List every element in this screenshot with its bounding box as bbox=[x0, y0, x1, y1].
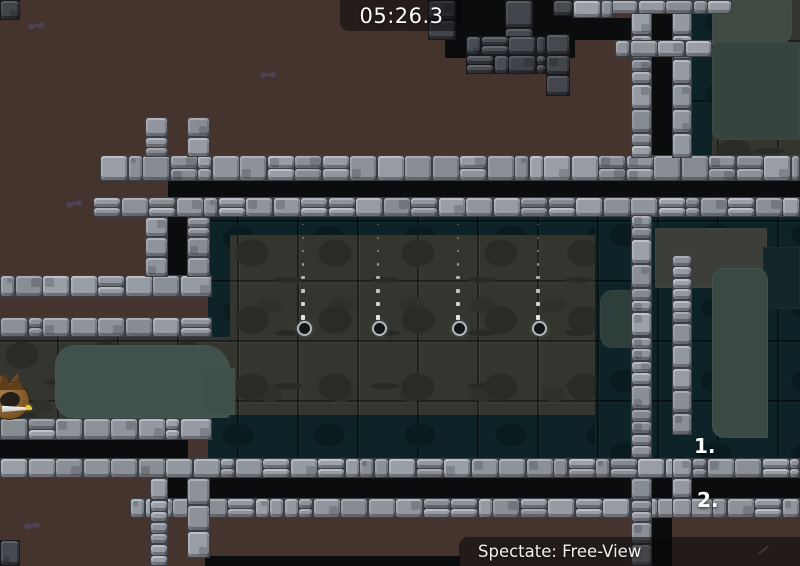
drip-particle bbox=[302, 263, 305, 266]
rank-label-1: 1. bbox=[694, 434, 716, 458]
drip-particle bbox=[301, 315, 306, 320]
game-viewport[interactable]: 05:26.3 1. 2. Spectate: Free-View bbox=[0, 0, 800, 566]
drip-particle bbox=[376, 302, 380, 306]
drip-particle bbox=[536, 302, 540, 306]
bone-doodad-icon bbox=[262, 73, 274, 77]
drip-particle bbox=[536, 276, 539, 279]
drip-source-icon bbox=[532, 321, 547, 336]
drip-particle bbox=[457, 250, 459, 252]
drip-particle bbox=[456, 315, 461, 320]
drip-particle bbox=[302, 250, 304, 252]
drip-particle bbox=[301, 302, 305, 306]
drip-particle bbox=[537, 263, 540, 266]
race-timer-panel: 05:26.3 bbox=[340, 0, 463, 31]
drip-particle bbox=[376, 315, 381, 320]
drip-particle bbox=[537, 237, 539, 239]
drip-particle bbox=[301, 276, 304, 279]
drip-source-icon bbox=[372, 321, 387, 336]
bone-doodad-icon bbox=[68, 201, 80, 206]
drip-particle bbox=[457, 224, 458, 225]
weapon-spark-icon bbox=[26, 405, 31, 410]
drip-particle bbox=[456, 302, 460, 306]
drip-particle bbox=[377, 250, 379, 252]
drip-particle bbox=[536, 315, 541, 320]
effects-layer bbox=[0, 0, 800, 566]
spectate-bar: Spectate: Free-View bbox=[459, 537, 800, 566]
drip-source-icon bbox=[297, 321, 312, 336]
drip-particle bbox=[457, 237, 459, 239]
drip-source-icon bbox=[452, 321, 467, 336]
bone-doodad-icon bbox=[30, 23, 42, 28]
rank-label-2: 2. bbox=[697, 488, 719, 512]
drip-particle bbox=[377, 224, 378, 225]
bar-glint-icon bbox=[758, 545, 769, 555]
drip-particle bbox=[457, 263, 460, 266]
drip-particle bbox=[537, 224, 538, 225]
drip-particle bbox=[536, 289, 540, 293]
race-timer-text: 05:26.3 bbox=[359, 4, 443, 28]
drip-particle bbox=[456, 289, 460, 293]
bone-doodad-icon bbox=[26, 523, 38, 527]
drip-particle bbox=[456, 276, 459, 279]
drip-particle bbox=[376, 289, 380, 293]
drip-particle bbox=[537, 250, 539, 252]
drip-particle bbox=[377, 263, 380, 266]
drip-particle bbox=[302, 224, 303, 225]
spectate-label: Spectate: Free-View bbox=[459, 542, 641, 561]
player-character bbox=[0, 376, 44, 424]
drip-particle bbox=[376, 276, 379, 279]
drip-particle bbox=[302, 237, 304, 239]
drip-particle bbox=[377, 237, 379, 239]
drip-particle bbox=[301, 289, 305, 293]
